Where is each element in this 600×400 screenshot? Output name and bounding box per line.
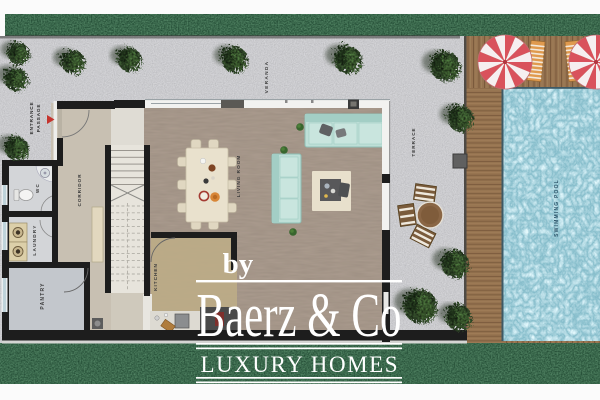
- svg-text:KITCHEN: KITCHEN: [153, 263, 158, 291]
- svg-text:TERRACE: TERRACE: [411, 127, 416, 156]
- svg-text:ENTRANCE: ENTRANCE: [29, 101, 35, 134]
- svg-text:by: by: [223, 248, 254, 280]
- svg-text:LIVING ROOM: LIVING ROOM: [236, 155, 241, 198]
- svg-text:WC: WC: [35, 183, 40, 193]
- svg-text:PASSAGE: PASSAGE: [36, 104, 42, 133]
- svg-text:SWIMMING POOL: SWIMMING POOL: [554, 179, 560, 237]
- svg-text:CORRIDOR: CORRIDOR: [77, 173, 82, 206]
- svg-text:PANTRY: PANTRY: [40, 282, 46, 309]
- svg-text:Baerz & Co: Baerz & Co: [197, 282, 402, 350]
- svg-text:VERANDA: VERANDA: [264, 61, 270, 94]
- svg-text:LAUNDRY: LAUNDRY: [32, 224, 37, 255]
